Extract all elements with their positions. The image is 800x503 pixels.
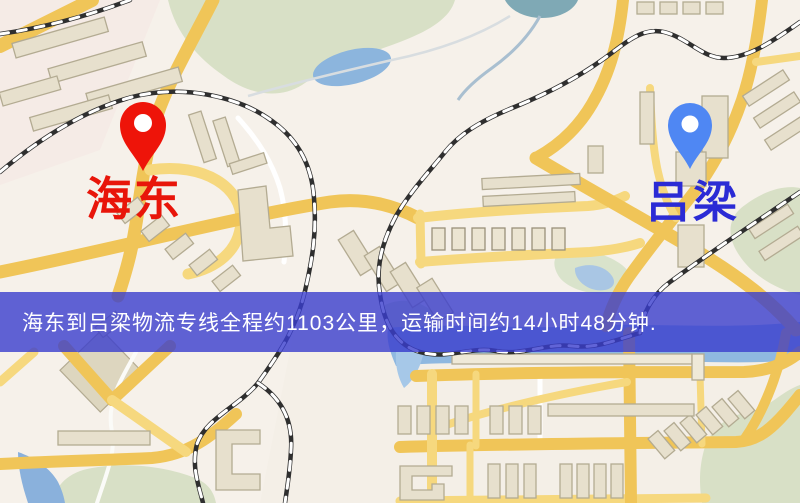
map-image [0, 0, 800, 503]
origin-label: 海东 [86, 177, 182, 223]
route-summary-banner: 海东到吕梁物流专线全程约1103公里，运输时间约14小时48分钟. [0, 292, 800, 352]
destination-label: 吕梁 [646, 181, 740, 225]
map-screenshot: 海东 吕梁 海东到吕梁物流专线全程约1103公里，运输时间约14小时48分钟. [0, 0, 800, 503]
route-summary-text: 海东到吕梁物流专线全程约1103公里，运输时间约14小时48分钟. [0, 307, 657, 337]
